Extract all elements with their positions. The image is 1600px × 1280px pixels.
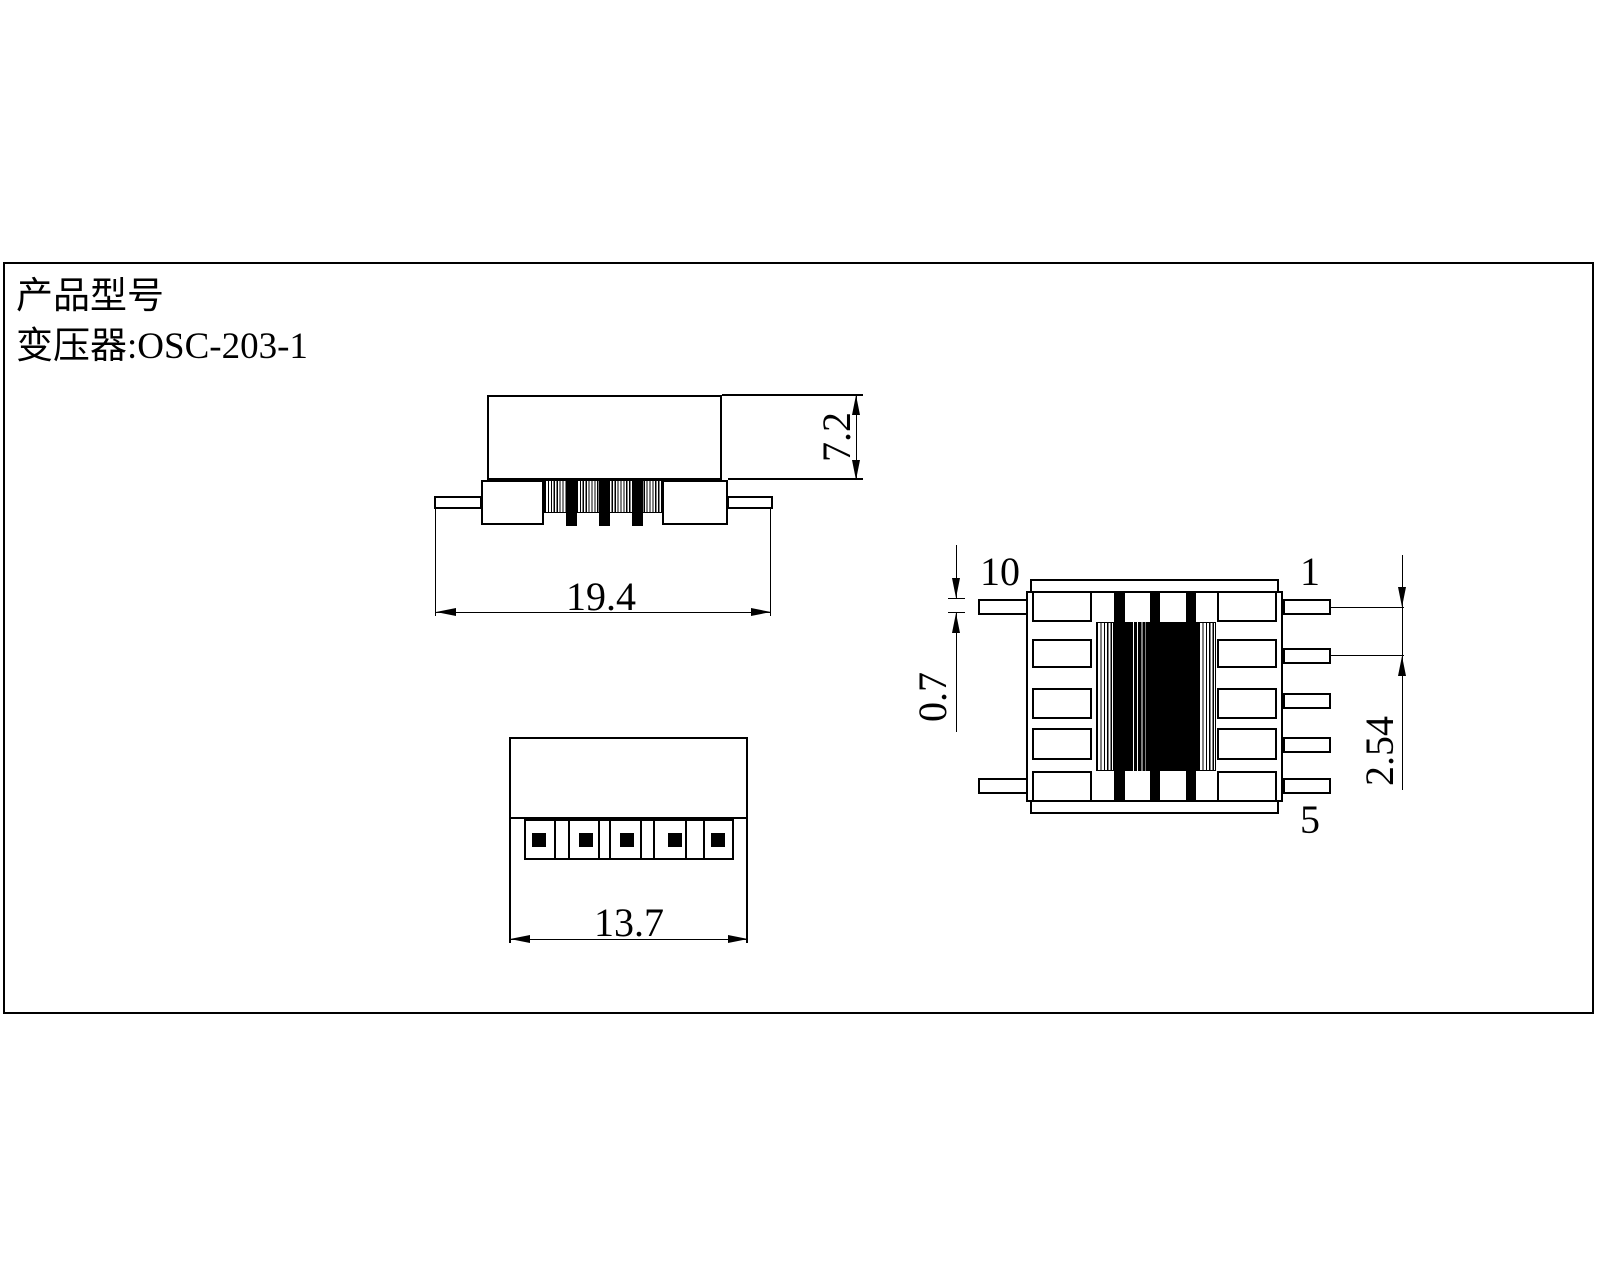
side-view-pin-label-1: 1 <box>1295 552 1325 592</box>
side-view-right-slot-5 <box>1217 771 1277 802</box>
front-view-width-ext-left <box>435 509 436 616</box>
side-view-pin-4 <box>1283 737 1331 753</box>
front-view-width-arrow-left <box>436 608 456 616</box>
side-view-left-slot-4 <box>1032 728 1092 760</box>
front-view-height-ext-bottom <box>728 478 863 480</box>
bottom-view-width-dim-text: 13.7 <box>569 903 689 943</box>
bottom-view-width-arrow-right <box>728 935 748 943</box>
side-view-pin-2 <box>1283 648 1331 664</box>
front-view-height-dim-text: 7.2 <box>817 397 857 477</box>
side-view-pitch-ext-bottom <box>1331 655 1404 656</box>
front-view-core-body <box>487 395 722 480</box>
side-view-thickness-arrow-up <box>952 613 960 633</box>
front-view-width-dim-text: 19.4 <box>541 577 661 617</box>
side-view-winding-black-right <box>1146 622 1198 771</box>
front-view-pin-1 <box>566 480 577 526</box>
side-view-pin-10 <box>978 599 1030 615</box>
bottom-view-right-edge <box>746 737 748 943</box>
side-view-right-slot-2 <box>1217 639 1277 668</box>
side-view-left-slot-5 <box>1032 771 1092 802</box>
side-view-right-slot-4 <box>1217 728 1277 760</box>
front-view-left-tab <box>434 496 482 509</box>
front-view-height-ext-top <box>722 394 863 396</box>
side-view-thickness-tick-top <box>948 598 965 599</box>
side-view-left-slot-3 <box>1032 688 1092 719</box>
side-view-pin-1 <box>1283 599 1331 615</box>
sheet-frame <box>3 262 1594 1014</box>
front-view-right-tab <box>727 496 773 509</box>
front-view-pin-2 <box>599 480 610 526</box>
transformer-model-number: 变压器:OSC-203-1 <box>16 322 308 372</box>
side-view-pin-label-10: 10 <box>975 552 1025 592</box>
front-view-width-arrow-right <box>751 608 771 616</box>
side-view-pin-6 <box>978 778 1030 794</box>
bottom-view-pad-divider <box>568 819 570 860</box>
bottom-view-pad-divider <box>609 819 611 860</box>
side-view-left-slot-1 <box>1032 591 1092 622</box>
side-view-pitch-dim-text: 2.54 <box>1360 701 1400 801</box>
front-view-width-ext-right <box>770 509 771 616</box>
side-view-pin-3 <box>1283 693 1331 709</box>
bottom-view-pad-4 <box>668 833 682 847</box>
bottom-view-pad-2 <box>579 833 593 847</box>
bottom-view-top-edge <box>509 737 748 739</box>
front-view-bobbin-right-cap <box>662 480 728 525</box>
bottom-view-left-edge <box>509 737 511 943</box>
side-view-thickness-dim-text: 0.7 <box>913 657 953 737</box>
side-view-winding-hatch-left <box>1096 622 1114 771</box>
side-view-pin-5 <box>1283 778 1331 794</box>
bottom-view-width-arrow-left <box>510 935 530 943</box>
side-view-pitch-arrow-down <box>1398 587 1406 607</box>
bottom-view-pad-3 <box>620 833 634 847</box>
title-block: 产品型号 变压器:OSC-203-1 <box>16 272 308 372</box>
front-view-bobbin-left-cap <box>481 480 544 525</box>
bottom-view-pad-divider <box>554 819 556 860</box>
side-view-winding-hatch-right <box>1198 622 1216 771</box>
side-view-winding-black-left <box>1114 622 1133 771</box>
side-view-right-slot-3 <box>1217 688 1277 719</box>
bottom-view-pad-divider <box>653 819 655 860</box>
side-view-left-slot-2 <box>1032 639 1092 668</box>
product-model-label: 产品型号 <box>16 272 308 322</box>
side-view-pin-label-5: 5 <box>1295 800 1325 840</box>
bottom-view-pad-5 <box>711 833 725 847</box>
bottom-view-pad-divider <box>685 819 687 860</box>
drawing-canvas: 产品型号 变压器:OSC-203-1 7.2 19.4 <box>0 0 1600 1280</box>
side-view-right-slot-1 <box>1217 591 1277 622</box>
front-view-pin-3 <box>632 480 643 526</box>
bottom-view-pad-1 <box>532 833 546 847</box>
bottom-view-pad-divider <box>703 819 705 860</box>
bottom-view-pad-divider <box>640 819 642 860</box>
side-view-pitch-ext-top <box>1331 607 1404 608</box>
side-view-winding-hatch-mid <box>1133 622 1146 771</box>
side-view-thickness-arrow-down <box>952 578 960 598</box>
side-view-pitch-arrow-up <box>1398 656 1406 676</box>
bottom-view-pad-divider <box>598 819 600 860</box>
